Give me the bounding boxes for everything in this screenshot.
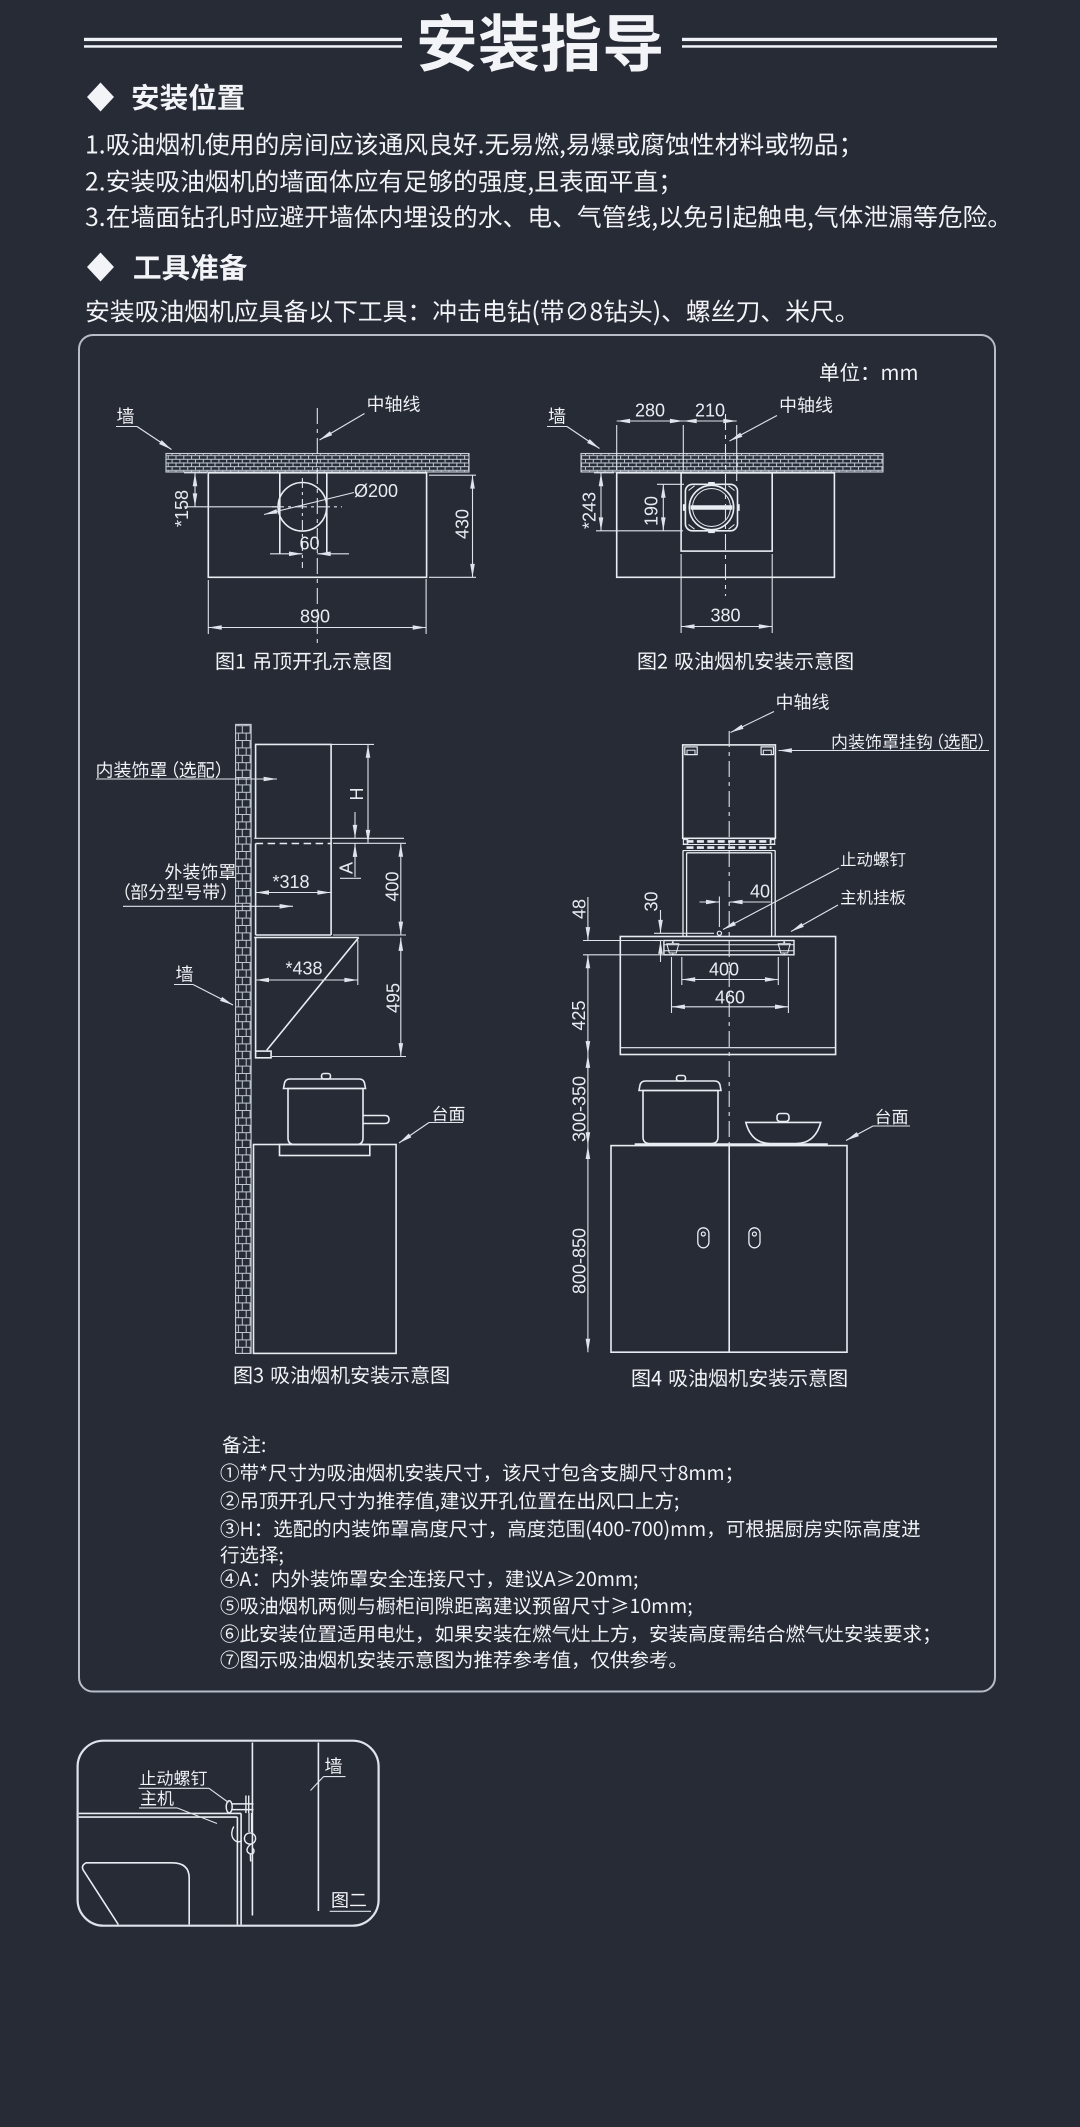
svg-text:800-850: 800-850 bbox=[570, 1228, 590, 1294]
svg-text:A: A bbox=[337, 862, 357, 874]
svg-text:30: 30 bbox=[642, 891, 662, 911]
svg-text:Ø200: Ø200 bbox=[354, 481, 398, 501]
svg-text:48: 48 bbox=[570, 899, 590, 919]
svg-text:40: 40 bbox=[750, 882, 770, 902]
svg-text:400: 400 bbox=[709, 960, 739, 980]
svg-text:430: 430 bbox=[453, 509, 473, 539]
svg-text:*438: *438 bbox=[285, 959, 322, 979]
svg-text:380: 380 bbox=[710, 606, 740, 626]
svg-text:210: 210 bbox=[695, 401, 725, 421]
svg-text:495: 495 bbox=[384, 983, 404, 1013]
svg-text:60: 60 bbox=[299, 534, 319, 554]
svg-text:425: 425 bbox=[569, 1000, 589, 1030]
svg-text:280: 280 bbox=[635, 401, 665, 421]
svg-text:*158: *158 bbox=[172, 490, 192, 527]
svg-text:190: 190 bbox=[642, 496, 662, 526]
svg-text:300-350: 300-350 bbox=[570, 1076, 590, 1142]
svg-text:400: 400 bbox=[383, 871, 403, 901]
svg-text:890: 890 bbox=[300, 607, 330, 627]
svg-text:460: 460 bbox=[715, 988, 745, 1008]
svg-text:*243: *243 bbox=[580, 492, 600, 529]
svg-text:H: H bbox=[347, 788, 367, 801]
svg-text:*318: *318 bbox=[272, 872, 309, 892]
